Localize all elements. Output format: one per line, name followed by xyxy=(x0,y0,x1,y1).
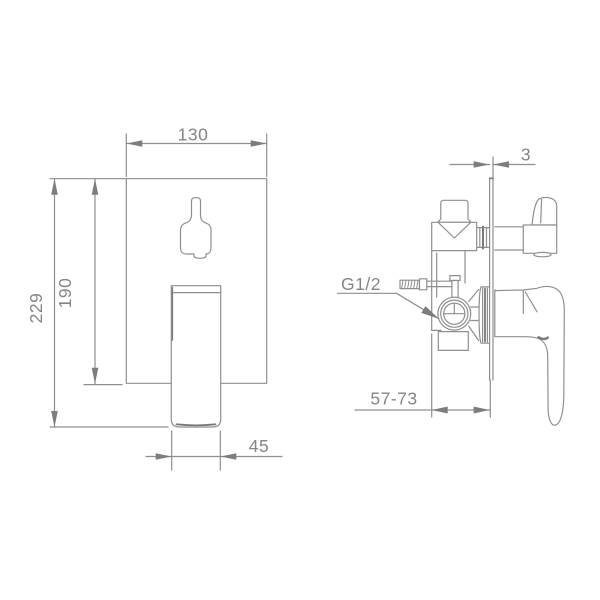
arrow-up xyxy=(92,179,99,195)
side-escutcheon xyxy=(479,287,490,343)
thread-leader xyxy=(338,293,439,319)
dim-handle-width-label: 45 xyxy=(249,436,269,456)
arrow-down xyxy=(51,411,58,427)
arrow-right xyxy=(156,453,172,460)
arrow-left xyxy=(220,453,236,460)
side-handle xyxy=(495,286,565,425)
front-handle-bottom-contour xyxy=(177,424,216,425)
front-handle xyxy=(171,286,220,427)
technical-drawing: 130 229 190 45 3 57-73 G1/2 xyxy=(0,0,600,600)
arrow-left xyxy=(432,407,448,414)
arrow-down xyxy=(92,368,99,384)
dim-total-height-label: 229 xyxy=(26,293,46,324)
side-bottom-box xyxy=(438,332,468,351)
side-stop-screw xyxy=(452,281,458,298)
drawing-svg: 130 229 190 45 3 57-73 G1/2 xyxy=(0,0,600,600)
side-threaded-inlet xyxy=(400,279,452,290)
thread-label: G1/2 xyxy=(341,274,381,294)
side-body-block xyxy=(432,222,477,250)
dim-width-label: 130 xyxy=(178,125,209,145)
arrow-right xyxy=(251,140,267,147)
side-cartridge xyxy=(438,297,471,330)
side-wall-plate xyxy=(490,157,493,417)
dim-plate-thickness-label: 3 xyxy=(521,145,531,165)
arrow-right xyxy=(474,407,490,414)
arrow-up xyxy=(51,179,58,195)
arrow-left xyxy=(126,140,142,147)
arrow-leader xyxy=(421,306,439,319)
arrow-left xyxy=(493,161,509,168)
side-diverter-knob xyxy=(495,197,557,256)
arrow-right xyxy=(474,161,490,168)
side-stop-screw-cap xyxy=(450,276,460,281)
side-view xyxy=(400,157,564,425)
front-view xyxy=(126,179,266,427)
dim-plate-height-label: 190 xyxy=(55,278,75,309)
side-top-port xyxy=(438,200,471,222)
dim-depth-label: 57-73 xyxy=(370,389,417,409)
